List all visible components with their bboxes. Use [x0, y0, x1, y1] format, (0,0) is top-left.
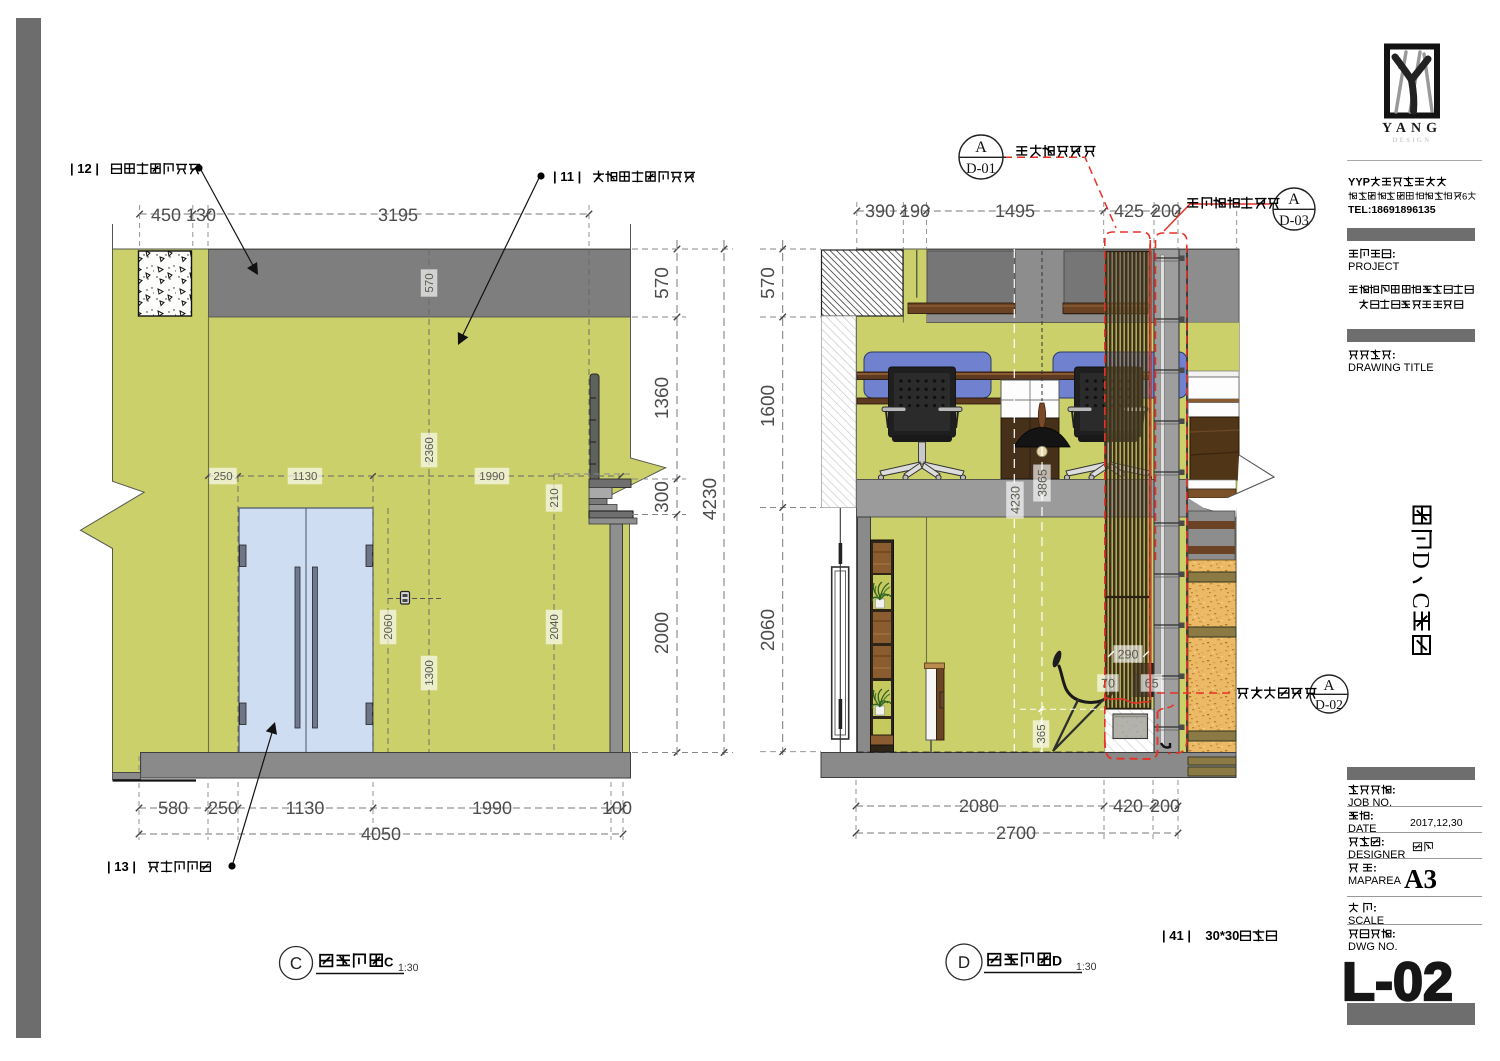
svg-text:2060: 2060: [383, 614, 395, 640]
svg-text:65: 65: [1145, 677, 1159, 691]
svg-text:210: 210: [549, 488, 561, 507]
svg-text:3865: 3865: [1036, 469, 1050, 497]
svg-text:2060: 2060: [758, 609, 779, 651]
svg-text:YANG: YANG: [1382, 121, 1442, 136]
svg-text:570: 570: [758, 267, 779, 299]
svg-text:570: 570: [424, 273, 436, 292]
svg-text:A: A: [1324, 678, 1335, 694]
svg-text:C: C: [290, 954, 302, 973]
svg-text:1130: 1130: [286, 798, 325, 818]
svg-text:2700: 2700: [996, 823, 1036, 843]
svg-text:365: 365: [1036, 724, 1048, 743]
svg-text:190: 190: [900, 201, 930, 221]
svg-text:1130: 1130: [293, 471, 318, 483]
svg-text:D: D: [958, 953, 970, 972]
svg-text:1:30: 1:30: [1076, 961, 1097, 973]
svg-text:1990: 1990: [472, 798, 512, 818]
svg-text:250: 250: [213, 471, 232, 483]
svg-text:290: 290: [1118, 648, 1139, 662]
svg-text:4050: 4050: [361, 824, 401, 844]
svg-text:2360: 2360: [424, 437, 436, 463]
svg-text:A: A: [975, 139, 987, 156]
svg-text:425: 425: [1114, 201, 1144, 221]
svg-text:250: 250: [208, 798, 238, 818]
svg-text:1990: 1990: [479, 471, 505, 483]
svg-text:D-03: D-03: [1279, 213, 1309, 229]
svg-text:300: 300: [652, 481, 673, 513]
svg-text:390: 390: [865, 201, 895, 221]
svg-text:1300: 1300: [424, 660, 436, 686]
svg-text:3195: 3195: [378, 205, 418, 225]
svg-text:D-02: D-02: [1315, 697, 1343, 712]
svg-text:1360: 1360: [652, 377, 673, 419]
svg-text:4230: 4230: [700, 478, 721, 520]
svg-text:2080: 2080: [959, 796, 999, 816]
svg-text:580: 580: [158, 798, 188, 818]
svg-text:1495: 1495: [995, 201, 1035, 221]
svg-text:4230: 4230: [1009, 486, 1023, 514]
svg-text:420: 420: [1113, 796, 1143, 816]
svg-text:100: 100: [602, 798, 632, 818]
svg-text:130: 130: [186, 205, 216, 225]
svg-text:DESIGN: DESIGN: [1393, 137, 1432, 144]
svg-text:1600: 1600: [758, 385, 779, 427]
svg-text:A: A: [1288, 191, 1300, 208]
svg-text:200: 200: [1150, 796, 1180, 816]
svg-text:2000: 2000: [652, 612, 673, 654]
svg-text:1:30: 1:30: [398, 962, 419, 974]
svg-text:D-01: D-01: [966, 161, 996, 177]
svg-text:570: 570: [652, 267, 673, 299]
svg-text:2040: 2040: [549, 614, 561, 640]
svg-text:70: 70: [1101, 677, 1115, 691]
svg-text:450: 450: [151, 205, 181, 225]
